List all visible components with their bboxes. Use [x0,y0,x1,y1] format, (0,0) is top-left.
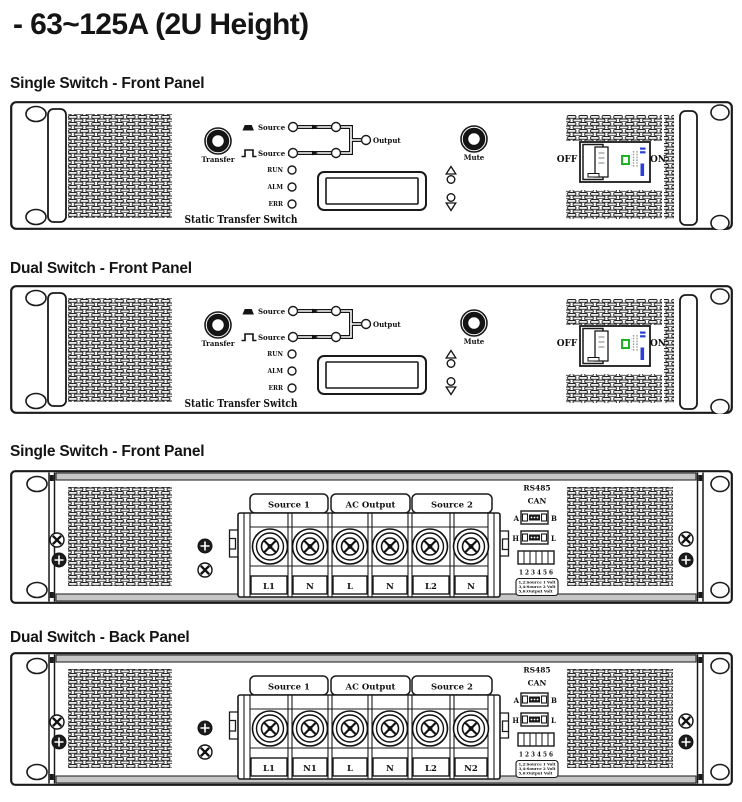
lcd-display [318,172,426,210]
vent-grille-left [68,298,172,402]
dip-legend-row2: 3,4:Source 2 Volt [519,767,556,771]
top-rail [56,655,696,662]
mount-hole [711,477,729,492]
led-alm [288,183,296,191]
dip-switch [518,551,554,564]
group-acoutput-label: AC Output [345,501,396,511]
port-h-label: H [512,534,519,543]
terminal-screw-icon [293,529,328,564]
page: - 63~125A (2U Height) Single Switch - Fr… [0,0,742,802]
off-label: OFF [557,155,578,165]
screw-icon [198,563,212,577]
led-err [288,384,296,392]
source1-label: Source 1 [258,123,293,132]
dip-switch [518,733,554,746]
terminal-4: N [386,582,394,592]
terminal-screw-icon [253,529,288,564]
mute-label: Mute [464,153,485,162]
mount-bar [48,109,66,222]
mute-button: Mute [461,126,487,162]
screw-icon [50,533,64,547]
mount-hole [711,105,729,120]
breaker-green-indicator [622,340,629,348]
port-a-label: A [513,514,520,523]
vent-grille-left [68,487,172,586]
terminal-screw-icon [253,711,288,746]
terminal-2: N [306,582,314,592]
on-label: ON [650,155,666,165]
lcd-display [318,356,426,394]
mount-hole [711,216,729,231]
terminal-screw-icon [373,711,408,746]
dip-legend-row2: 3,4:Source 2 Volt [519,585,556,589]
mount-hole [26,210,46,225]
top-rail [56,473,696,480]
terminal-screw-icon [333,711,368,746]
dip-numbers: 1 2 3 4 5 6 [519,570,553,577]
led-run [288,166,296,174]
status-leds: RUN ALM ERR [266,350,296,392]
mute-label: Mute [464,337,485,346]
breaker-blue-bar [641,164,645,177]
front-panel-single: Transfer Source 1 Source 2 Output RUN [10,101,733,230]
terminal-3: L [347,582,353,592]
terminal-5: L2 [425,582,437,592]
port-h-label: H [512,716,519,725]
rs485-label: RS485 [523,666,550,675]
section-label-2: Dual Switch - Front Panel [10,260,192,278]
vent-grille-right-column [664,299,674,403]
on-label: ON [650,339,666,349]
terminal-1: L1 [263,582,275,592]
vent-grille-right [567,487,673,586]
off-label: OFF [557,339,578,349]
port-l-label: L [551,716,556,725]
screw-icon [50,715,64,729]
breaker-blue-bar [641,348,645,361]
vent-grille-right-top [566,299,662,325]
mount-hole [27,583,47,598]
product-name: Static Transfer Switch [185,396,298,410]
dip-numbers: 1 2 3 4 5 6 [519,752,553,759]
mute-button: Mute [461,310,487,346]
vent-grille-right [567,669,673,768]
source1-label: Source 1 [258,307,293,316]
transfer-label: Transfer [201,339,234,348]
port-b-label: B [551,696,557,705]
output-label: Output [373,320,401,329]
terminal-1: L1 [263,764,275,774]
screw-icon [679,714,693,728]
port-a-label: A [513,696,520,705]
page-title: - 63~125A (2U Height) [13,8,309,42]
mount-hole [711,583,729,598]
section-label-1: Single Switch - Front Panel [10,75,204,93]
screw-icon [198,745,212,759]
terminal-block: Source 1 AC Output Source 2 L1 [230,676,509,779]
led-alm-label: ALM [266,184,283,191]
terminal-screw-icon [293,711,328,746]
terminal-screw-icon [373,529,408,564]
terminal-4: N [386,764,394,774]
mount-bar [680,111,697,225]
group-source1-label: Source 1 [268,683,310,693]
terminal-6: N [467,582,475,592]
dip-legend-row1: 1,2:Source 1 Volt [519,763,556,767]
back-panel-single: Source 1 AC Output Source 2 L1 [10,470,733,604]
vent-grille-right-bottom [566,190,662,219]
dip-legend: 1,2:Source 1 Volt 3,4:Source 2 Volt 5,6:… [516,579,558,596]
product-name: Static Transfer Switch [185,212,298,226]
port-b-label: B [551,514,557,523]
screw-icon [52,553,66,567]
led-run [288,350,296,358]
screw-icon [198,539,212,553]
terminal-screw-icon [413,711,448,746]
transfer-label: Transfer [201,155,234,164]
dip-legend-row1: 1,2:Source 1 Volt [519,581,556,585]
terminal-screw-icon [454,529,489,564]
terminal-screw-icon [333,529,368,564]
group-source2-label: Source 2 [431,683,473,693]
group-source2-label: Source 2 [431,501,473,511]
dip-legend-row3: 5,6:Output Volt [519,590,554,594]
terminal-3: L [347,764,353,774]
can-label: CAN [528,679,547,688]
terminal-6: N2 [464,764,478,774]
group-acoutput-label: AC Output [345,683,396,693]
port-l-label: L [551,534,556,543]
breaker-rocker [595,147,608,177]
terminal-screw-icon [413,529,448,564]
led-err [288,200,296,208]
led-run-label: RUN [267,167,283,174]
dip-legend: 1,2:Source 1 Volt 3,4:Source 2 Volt 5,6:… [516,761,558,778]
vent-grille-right-top [566,115,662,141]
led-run-label: RUN [267,351,283,358]
back-panel-dual: Source 1 AC Output Source 2 L1 [10,652,733,786]
terminal-screw-icon [454,711,489,746]
led-alm [288,367,296,375]
source2-label: Source 2 [258,333,293,342]
led-err-label: ERR [268,385,284,392]
mount-hole [26,107,46,122]
screw-icon [679,532,693,546]
vent-grille-left [68,114,172,218]
terminal-2: N1 [303,764,317,774]
rs485-label: RS485 [523,484,550,493]
screw-icon [679,553,693,567]
vent-grille-right-column [664,115,674,219]
screw-icon [679,735,693,749]
screw-icon [198,721,212,735]
front-panel-dual: Transfer Source 1 Source 2 Output RUN [10,285,733,414]
can-label: CAN [528,497,547,506]
terminal-5: L2 [425,764,437,774]
group-source1-label: Source 1 [268,501,310,511]
source2-label: Source 2 [258,149,293,158]
output-label: Output [373,136,401,145]
dip-legend-row3: 5,6:Output Volt [519,772,554,776]
status-leds: RUN ALM ERR [266,166,296,208]
mount-hole [27,477,47,492]
vent-grille-left [68,669,172,768]
vent-grille-right-bottom [566,374,662,403]
terminal-block: Source 1 AC Output Source 2 L1 [230,494,509,597]
section-label-3: Single Switch - Front Panel [10,443,204,461]
led-alm-label: ALM [266,368,283,375]
section-label-4: Dual Switch - Back Panel [10,629,190,647]
screw-icon [52,735,66,749]
led-err-label: ERR [268,201,284,208]
breaker-rocker [595,331,608,361]
breaker-green-indicator [622,156,629,164]
